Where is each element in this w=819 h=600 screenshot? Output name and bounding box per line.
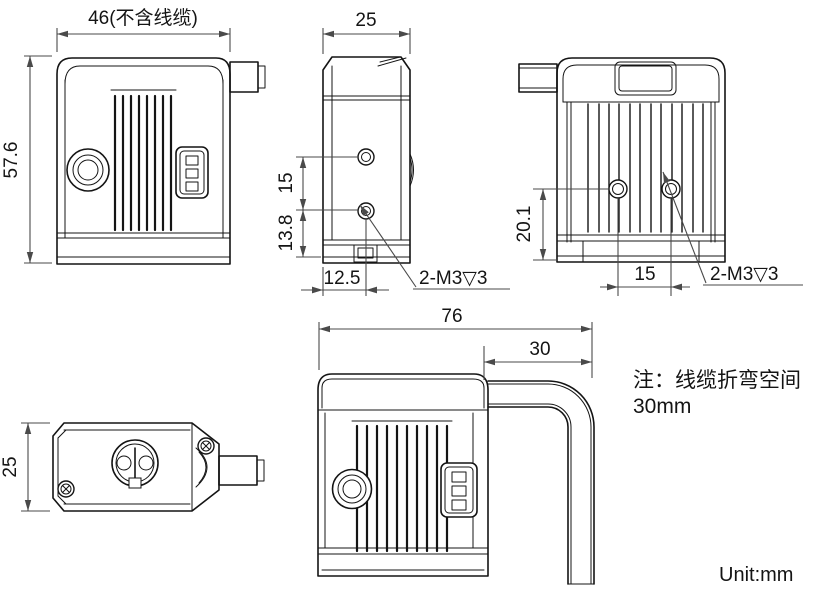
dim-back-hole-height-label: 20.1 [514,206,535,243]
top-view: 25 [0,423,264,511]
cable-view-led-indicators [441,463,477,517]
dim-side-width: 25 [323,10,410,54]
top-screw-right [198,438,214,454]
bent-cable [488,381,594,584]
side-mounting-hole-upper [358,149,374,165]
dimension-drawing: 46(不含线缆) 57.6 [0,0,819,600]
side-thread-label: 2-M3▽3 [419,268,487,289]
back-thread-hole-left [609,180,627,198]
dim-top-depth: 25 [0,423,50,511]
back-top-window [615,62,676,95]
cable-view-lens [333,470,372,509]
dim-side-hole-spacing-label: 15 [276,172,297,193]
dim-side-width-label: 25 [355,10,376,31]
note-line1: 注：线缆折弯空间 [633,369,801,392]
front-view-with-cable: 76 30 [318,306,594,584]
front-cap-inner [65,66,223,84]
dim-front-height: 57.6 [1,56,52,263]
dim-top-depth-label: 25 [0,456,21,477]
drawing-canvas: 46(不含线缆) 57.6 [0,0,819,600]
note-line2: 30mm [633,395,691,418]
dim-front-height-label: 57.6 [1,142,22,179]
note-text: 注：线缆折弯空间 30mm [633,369,801,418]
dim-cable-clearance: 30 [484,339,592,380]
unit-label: Unit:mm [719,564,793,586]
dim-total-width: 76 [319,306,592,378]
dim-total-width-label: 76 [441,306,462,327]
cooling-fins [111,90,176,230]
top-cable-stub [219,456,264,485]
back-body-outline [557,58,725,262]
back-cable-stub [519,64,557,92]
back-thread-hole-right [662,180,680,198]
dim-side-offset-label: 12.5 [324,268,361,289]
dim-front-width: 46(不含线缆) [57,7,230,52]
dim-back-hole-spacing: 15 [600,198,690,296]
cable-connector-stub [230,62,265,92]
back-thread-label: 2-M3▽3 [710,264,778,285]
back-view: 20.1 15 2-M3▽3 [514,58,803,296]
side-thread-callout: 2-M3▽3 [360,205,510,289]
back-thread-callout: 2-M3▽3 [663,172,803,285]
dim-cable-clearance-label: 30 [529,339,550,360]
dim-side-hole-base-label: 13.8 [276,215,297,252]
top-screw-left [58,481,74,497]
back-cooling-fins [588,104,703,232]
circular-connector [112,440,158,488]
front-view: 46(不含线缆) 57.6 [1,7,265,264]
dim-side-holes: 15 13.8 [276,157,358,257]
dim-back-hole-height: 20.1 [514,189,608,260]
side-view: 25 15 13.8 12.5 2-M3▽3 [276,10,510,296]
led-indicators [176,147,208,198]
lens [67,149,109,191]
dim-front-width-label: 46(不含线缆) [88,7,198,29]
dim-back-hole-spacing-label: 15 [634,264,655,285]
